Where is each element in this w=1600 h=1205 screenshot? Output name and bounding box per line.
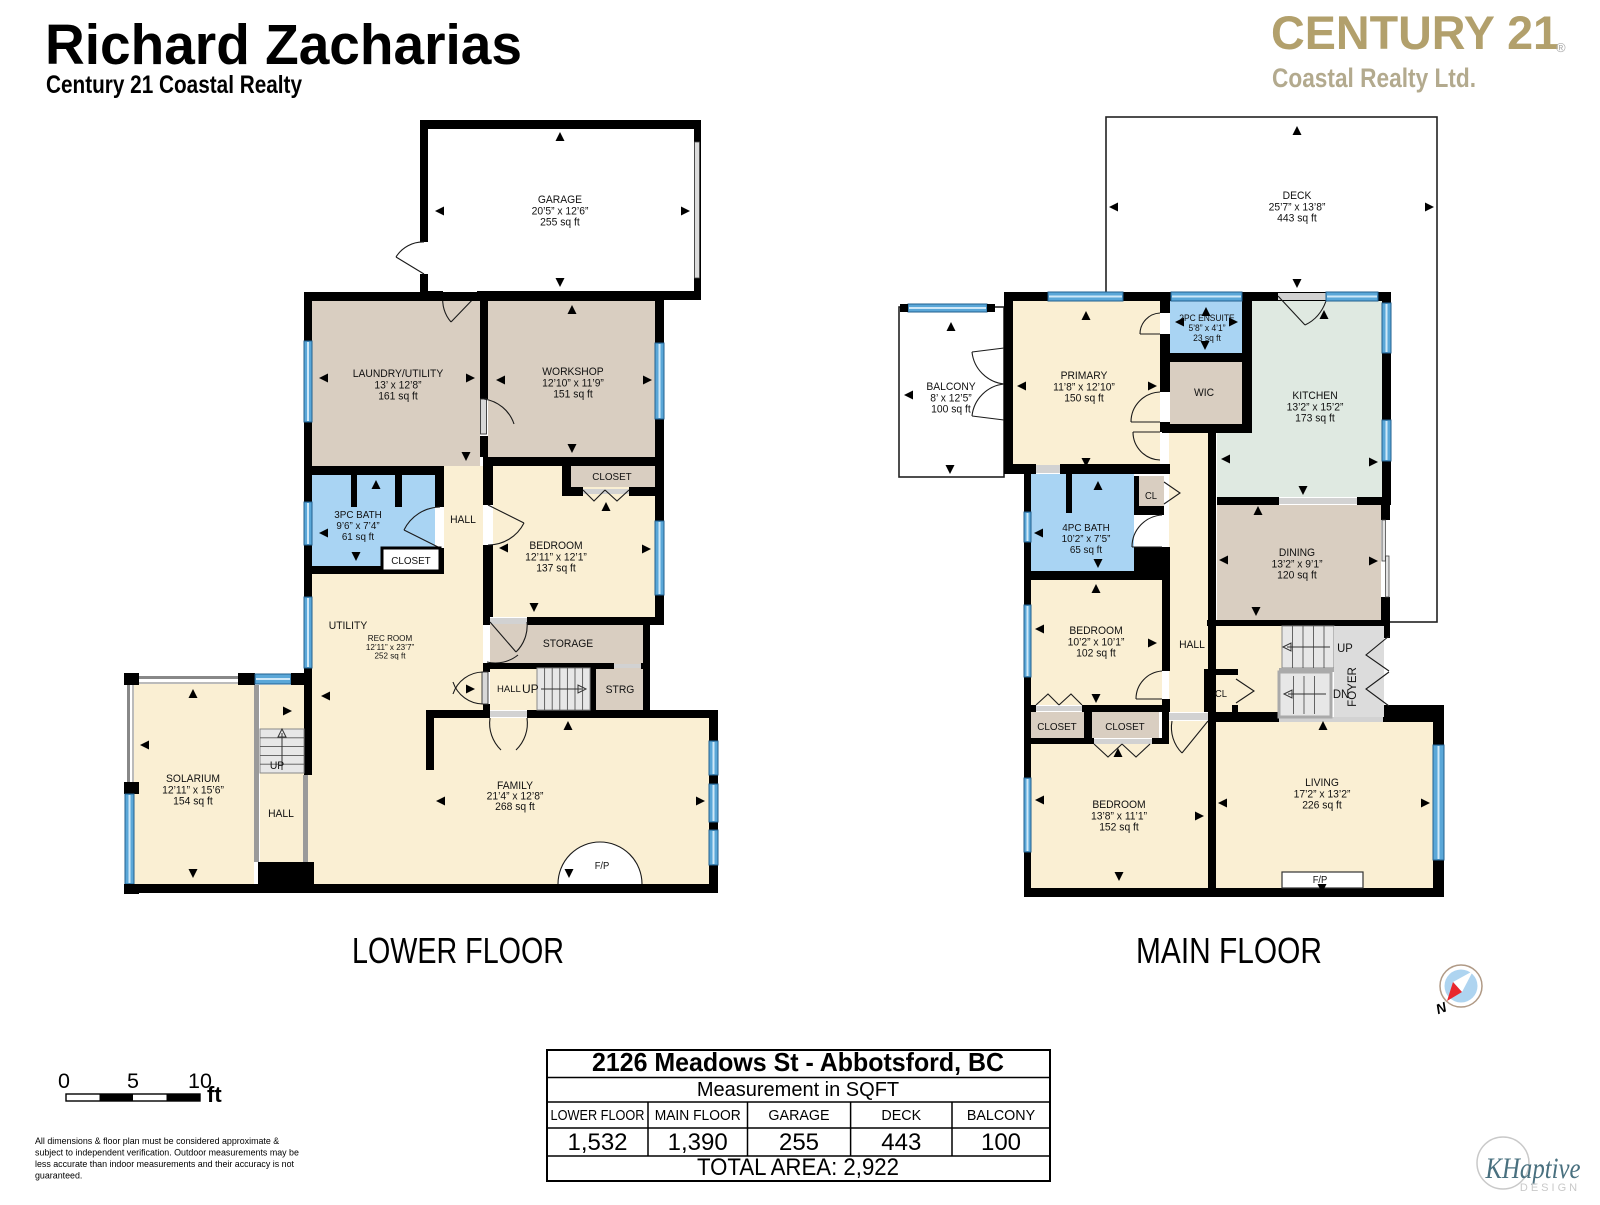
svg-text:Richard Zacharias: Richard Zacharias xyxy=(45,13,522,77)
svg-text:HALL: HALL xyxy=(1179,639,1205,651)
svg-text:2126 Meadows St - Abbotsford,: 2126 Meadows St - Abbotsford, BC xyxy=(592,1047,1004,1077)
svg-text:HALLUP: HALLUP xyxy=(497,682,539,696)
svg-text:TOTAL AREA: 2,922: TOTAL AREA: 2,922 xyxy=(697,1154,899,1181)
svg-text:WIC: WIC xyxy=(1194,387,1214,399)
svg-text:STRG: STRG xyxy=(606,684,635,696)
svg-text:HALL: HALL xyxy=(450,514,476,526)
svg-text:Measurement in SQFT: Measurement in SQFT xyxy=(697,1079,899,1101)
svg-text:ft: ft xyxy=(207,1082,222,1107)
svg-text:CLOSET: CLOSET xyxy=(1037,722,1076,733)
svg-text:Coastal Realty Ltd.: Coastal Realty Ltd. xyxy=(1272,63,1476,93)
svg-text:UTILITY: UTILITY xyxy=(329,620,367,632)
svg-text:FOYER: FOYER xyxy=(1347,667,1359,707)
svg-text:HALL: HALL xyxy=(268,808,294,820)
svg-text:CL: CL xyxy=(1145,491,1158,502)
svg-text:CLOSET: CLOSET xyxy=(391,556,430,567)
svg-text:CENTURY 21: CENTURY 21 xyxy=(1271,6,1559,59)
svg-text:CLOSET: CLOSET xyxy=(1105,722,1144,733)
svg-text:UP: UP xyxy=(270,760,284,772)
svg-text:CL: CL xyxy=(1215,689,1228,700)
svg-text:Century 21 Coastal Realty: Century 21 Coastal Realty xyxy=(46,71,302,99)
svg-text:F/P: F/P xyxy=(595,861,610,872)
svg-text:KHaptive: KHaptive xyxy=(1485,1152,1581,1185)
svg-text:BALCONY8’ x 12’5”100 sq ft: BALCONY8’ x 12’5”100 sq ft xyxy=(926,381,975,416)
svg-text:®: ® xyxy=(1556,40,1566,55)
svg-text:LOWER FLOOR: LOWER FLOOR xyxy=(352,930,564,971)
svg-text:STORAGE: STORAGE xyxy=(543,638,593,650)
svg-text:MAIN FLOOR: MAIN FLOOR xyxy=(1136,930,1322,971)
svg-text:DESIGN: DESIGN xyxy=(1520,1182,1580,1194)
svg-text:CLOSET: CLOSET xyxy=(592,472,631,483)
svg-text:UP: UP xyxy=(1337,642,1353,655)
